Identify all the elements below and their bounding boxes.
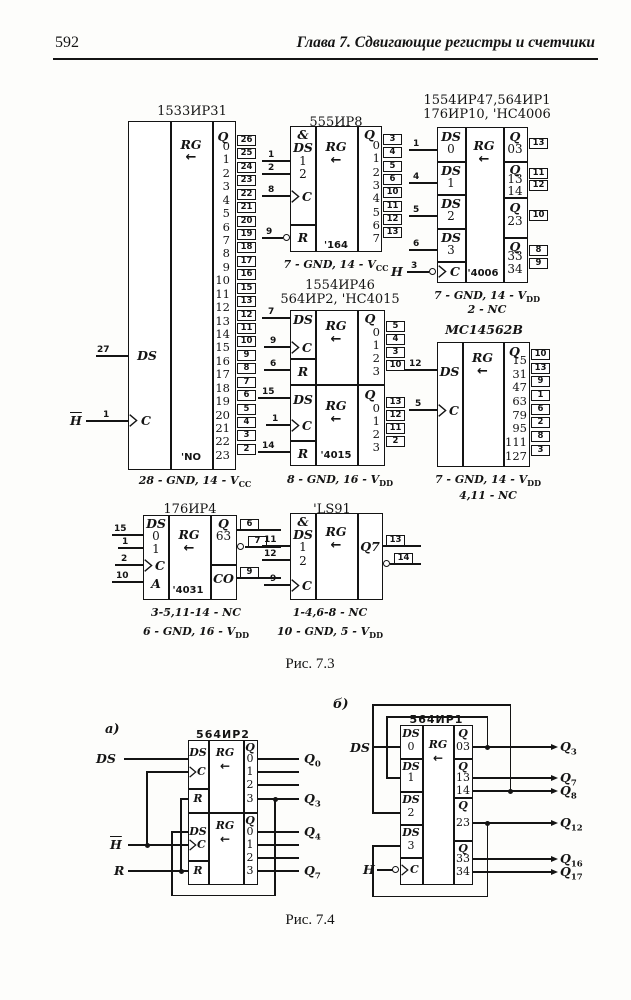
pin-flag: 6 [531,404,550,415]
ic-title: MC14562B [414,322,554,337]
pin-flag: 10 [386,360,405,371]
divider [188,860,208,862]
ds-label: DS [132,348,162,363]
r-label: R [187,792,209,805]
wire [115,564,143,566]
figure-caption: Рис. 7.4 [240,912,380,929]
feedback-wire [487,717,489,747]
ic-title: 1533ИР31 [132,104,252,119]
wire [146,772,148,845]
q-number: 5 [202,206,230,220]
arrowhead [551,788,558,794]
wire [180,798,188,800]
clock-triangle [189,766,197,778]
output-label: Q0 [304,751,321,770]
q-tap: 34 [502,262,528,276]
ds-index: 3 [399,839,423,852]
q-tap: 34 [451,865,475,878]
pin-flag: 11 [237,323,256,334]
figure-caption: Рис. 7.3 [240,656,380,673]
q-tap: 14 [502,184,528,198]
ds-index: 2 [438,209,464,223]
pin-number: 4 [413,172,419,182]
q-number: 20 [202,408,230,422]
pin-flag: 21 [237,202,256,213]
feedback-wire [487,822,489,897]
shift-direction-arrow: ← [315,153,357,168]
pin-flag: 6 [237,390,256,401]
feedback-wire [171,831,188,833]
pin-flag: 13 [237,296,256,307]
wire [409,149,437,151]
q-header: Q [357,387,383,402]
q-number: 1 [352,414,380,428]
q-number: 3 [352,364,380,378]
q-number: 31 [498,367,527,381]
clock-triangle [291,341,300,354]
feedback-wire [372,845,400,847]
wire [258,771,299,773]
clock-triangle [291,579,300,592]
ds-label: DS [399,826,423,839]
output-label: Q3 [304,791,321,810]
q-header: Q [502,200,528,215]
q-number: 127 [498,449,527,463]
ds-index: 3 [438,243,464,257]
pin-flag: 2 [386,436,405,447]
feedback-wire [372,705,374,813]
pin-number: 15 [262,387,275,397]
pin-flag: 2 [531,417,550,428]
wire [409,182,437,184]
q-number: 111 [498,435,527,449]
pin-flag: 1 [531,390,550,401]
q-number: 18 [202,381,230,395]
divider [290,358,315,360]
wire [262,160,290,162]
pin-flag: 2 [237,444,256,455]
output-label: Q12 [560,815,583,834]
q-number: 47 [498,380,527,394]
pin-flag: 15 [237,283,256,294]
pin-flag: 12 [237,310,256,321]
pin-flag: 22 [237,189,256,200]
q-tap: 33 [502,249,528,263]
pin-flag: 10 [529,210,548,221]
shift-direction-arrow: ← [315,332,357,347]
wire [262,559,290,561]
wire [473,871,551,873]
q-number: 5 [352,205,380,219]
q-header: Q [451,727,475,740]
feedback-wire [274,799,276,896]
pin-number: 1 [122,537,128,547]
pin-flag: 13 [386,535,405,546]
arrowhead [551,775,558,781]
wire [86,420,128,422]
q-number: 12 [202,300,230,314]
ds-input-2: 2 [291,167,315,181]
h-input-label: H [391,264,403,279]
page-number: 592 [55,34,79,52]
clock-triangle [144,559,153,572]
pin-flag: 12 [383,214,402,225]
h-input-label: H [110,837,122,852]
ds-pin: 12 [409,359,422,369]
book-page: 592 Глава 7. Сдвигающие регистры и счетч… [0,0,631,1000]
header-rule [53,58,598,60]
ds-input-label: DS [96,751,116,766]
q-number: 8 [202,246,230,260]
q-number: 3 [352,440,380,454]
analog-label: '4031 [166,585,210,596]
wire [262,545,290,547]
divider [290,440,315,442]
wire [258,844,299,846]
analog-label: '164 [315,240,357,251]
pin-flag: 9 [237,350,256,361]
pin-flag: 16 [237,269,256,280]
output-label: Q3 [560,739,577,758]
q-number: 9 [202,260,230,274]
c-label: C [302,189,312,204]
pin-flag: 11 [386,423,405,434]
clock-triangle [129,414,138,427]
q-number: 0 [352,401,380,415]
feedback-wire [386,777,400,779]
pin-number: 1 [413,139,419,149]
pin-flag: 10 [237,336,256,347]
wire [377,869,393,871]
pin-flag: 23 [237,175,256,186]
ic-title: 1554ИР46 [270,278,410,293]
pin-flag: 7 [237,377,256,388]
pin-flag: 13 [531,363,550,374]
divider [400,857,422,859]
pin-number: 12 [264,549,277,559]
c-label: C [449,403,459,418]
pin-flag: 12 [529,180,548,191]
c-pin: 5 [415,399,421,409]
ds-label: DS [187,746,209,759]
clock-triangle [401,864,409,876]
c-pin: 2 [121,554,127,564]
pin-flag: 6 [383,174,402,185]
feedback-wire [372,704,511,706]
inversion-circle [383,560,390,567]
ds-input-1: 1 [291,540,315,554]
r-label: R [291,230,315,245]
ds-label: DS [399,793,423,806]
feedback-wire [510,705,512,791]
q-number: 6 [202,220,230,234]
pin-number: 1 [268,150,274,160]
q-number: 4 [202,193,230,207]
wire [112,581,143,583]
ds-label: DS [437,364,462,379]
clock-triangle [291,190,300,203]
shift-direction-arrow: ← [168,541,210,556]
pin-flag: 13 [383,227,402,238]
ic-title-2: 564ИР2, 'HC4015 [270,292,410,307]
nc-note: 1-4,6-8 - NC [250,606,410,619]
q-tap: 33 [451,852,475,865]
wire [112,534,143,536]
divider [188,788,208,790]
clock-triangle [189,839,197,851]
wire [258,870,299,872]
wire [409,215,437,217]
pin-number: 9 [270,336,276,346]
q7-label: Q7 [357,539,383,554]
wire [405,369,437,371]
pin-flag: 11 [383,201,402,212]
divider [357,514,359,599]
r-label: R [187,864,209,877]
pin-flag: 11 [529,168,548,179]
c-label: C [302,578,312,593]
pin-number: 6 [270,359,276,369]
q-number: 3 [202,179,230,193]
q-tap: 03 [451,740,475,753]
q-header: Q [357,311,383,326]
pin-flag: 9 [529,258,548,269]
wire [146,771,188,773]
wire [180,799,182,871]
inversion-circle [283,234,290,241]
ds-index: 0 [144,529,168,543]
pin-flag: 10 [531,349,550,360]
pin-flag: 13 [386,397,405,408]
q-number: 4 [352,191,380,205]
pin-flag: 10 [383,187,402,198]
q-number: 6 [352,218,380,232]
wire [258,758,299,760]
pin-flag: 3 [383,134,402,145]
power-note: 8 - GND, 16 - VDD [270,473,410,488]
shift-direction-arrow: ← [315,412,357,427]
power-note: 7 - GND, 14 - VDD [418,473,558,488]
nc-note: 4,11 - NC [418,489,558,502]
pin-flag: 3 [531,445,550,456]
wire [118,547,143,549]
shift-direction-arrow: ← [462,152,506,167]
pin-number: 5 [413,205,419,215]
q-number: 15 [498,353,527,367]
c-pin: 8 [268,185,274,195]
wire [258,857,299,859]
pin-number: 1 [272,414,278,424]
q-number: 2 [352,427,380,441]
rg-label: RG [315,398,357,413]
rg-label: RG [168,527,210,542]
q-number: 63 [498,394,527,408]
subfigure-tag: а) [105,722,120,737]
q-number: 95 [498,421,527,435]
power-note: 10 - GND, 5 - VDD [250,625,410,640]
pin-flag: 4 [383,147,402,158]
pin-flag: 26 [237,135,256,146]
wire [258,831,299,833]
pin-flag: 5 [383,161,402,172]
subfigure-tag: б) [333,697,349,712]
rg-label: RG [462,138,506,153]
clock-triangle [438,404,447,417]
ds-label: DS [291,312,315,327]
output-label: Q8 [560,783,577,802]
arrowhead [551,869,558,875]
pin-flag: 25 [237,148,256,159]
c-label: C [302,340,312,355]
q-number: 79 [498,408,527,422]
q-tap: 03 [502,142,528,156]
pin-number: 6 [413,239,419,249]
q-number: 7 [352,231,380,245]
inversion-circle [429,268,436,275]
c-label: C [450,264,460,279]
h-input-label: H [70,413,82,428]
feedback-wire [372,812,400,814]
q-number: 23 [202,448,230,462]
ds-label: DS [291,392,315,407]
clock-triangle [438,265,447,278]
divider [170,122,172,469]
c-pin: 9 [270,574,276,584]
q-tap: 14 [451,784,475,797]
pin-flag: 4 [237,417,256,428]
pin-flag: 13 [529,138,548,149]
q-number: 15 [202,340,230,354]
wire [409,249,437,251]
feedback-wire [386,716,488,718]
c-pin: 1 [103,410,109,420]
q-number: 2 [352,351,380,365]
c-label: C [141,413,151,428]
feedback-wire [171,832,173,896]
inversion-circle [392,866,399,873]
q-header: Q [451,799,475,812]
ds-label: DS [187,825,209,838]
feedback-wire [386,717,388,778]
feedback-wire [171,895,276,897]
ds-input-1: 1 [291,154,315,168]
q-number: 2 [202,166,230,180]
q-number: 22 [202,434,230,448]
wire [262,237,283,239]
r-label: R [291,446,315,461]
r-input-label: R [114,863,124,878]
pin-flag: 3 [237,430,256,441]
ds-label: DS [291,140,315,155]
wire [262,173,290,175]
pin-flag: 9 [240,567,259,578]
q-number: 2 [352,165,380,179]
chapter-heading: Глава 7. Сдвигающие регистры и счетчики [200,34,595,52]
wire [473,777,551,779]
pin-number: 10 [116,571,129,581]
c-label: C [197,838,206,851]
feedback-wire [372,896,488,898]
ds-index: 2 [399,806,423,819]
rg-label: RG [315,139,357,154]
a-label: A [144,576,168,591]
pin-flag: 8 [237,363,256,374]
wire [258,397,290,399]
q-number: 0 [352,325,380,339]
ds-index: 1 [144,542,168,556]
pin-flag: 4 [386,334,405,345]
divider [437,261,465,263]
pin-number: 15 [114,524,127,534]
pin-flag: 8 [531,431,550,442]
q-tap: 13 [451,771,475,784]
q-number: 1 [202,152,230,166]
pin-flag: 19 [237,229,256,240]
q-number: 13 [202,314,230,328]
power-note: 7 - GND, 14 - VDD [417,289,557,304]
pin-number: 11 [264,535,277,545]
clock-triangle [291,419,300,432]
pin-flag: 14 [394,553,413,564]
wire [258,798,299,800]
pin-flag: 8 [529,245,548,256]
pin-flag: 6 [240,519,259,530]
c-label: C [410,863,419,876]
wire [124,758,188,760]
shift-direction-arrow: ← [315,538,357,553]
ic-title-2: 176ИР10, 'HC4006 [407,107,567,122]
wire [258,784,299,786]
q-number: 17 [202,367,230,381]
q-number: 21 [202,421,230,435]
section-divider [290,384,385,386]
pin-flag: 20 [237,216,256,227]
ds-input-label: DS [350,740,370,755]
pin-flag: 12 [386,410,405,421]
analog-label: '4006 [461,268,505,279]
wire [409,409,437,411]
q-number: 0 [352,138,380,152]
pin-flag: 3 [386,347,405,358]
q-number: 10 [202,273,230,287]
pin-flag: 5 [237,404,256,415]
arrowhead [551,856,558,862]
q-number: 11 [202,287,230,301]
pin-number: 14 [262,441,275,451]
q-number: 7 [202,233,230,247]
ds-pin: 27 [97,345,110,355]
wire [473,858,551,860]
pin-flag: 9 [531,376,550,387]
q-number: 16 [202,354,230,368]
rg-label: RG [315,318,357,333]
pin-number: 2 [268,163,274,173]
r-pin: 9 [266,227,272,237]
q-tap: 23 [502,214,528,228]
wire [96,355,128,357]
q-number: 1 [352,338,380,352]
q-number: 1 [352,151,380,165]
q-number: 0 [202,139,230,153]
power-note: 7 - GND, 14 - VCC [266,258,406,273]
wire [258,451,290,453]
arrowhead [551,820,558,826]
wire [128,844,188,846]
inversion-circle [237,543,244,550]
q-number: 14 [202,327,230,341]
wire [266,424,290,426]
q-tap: 63 [210,529,237,543]
